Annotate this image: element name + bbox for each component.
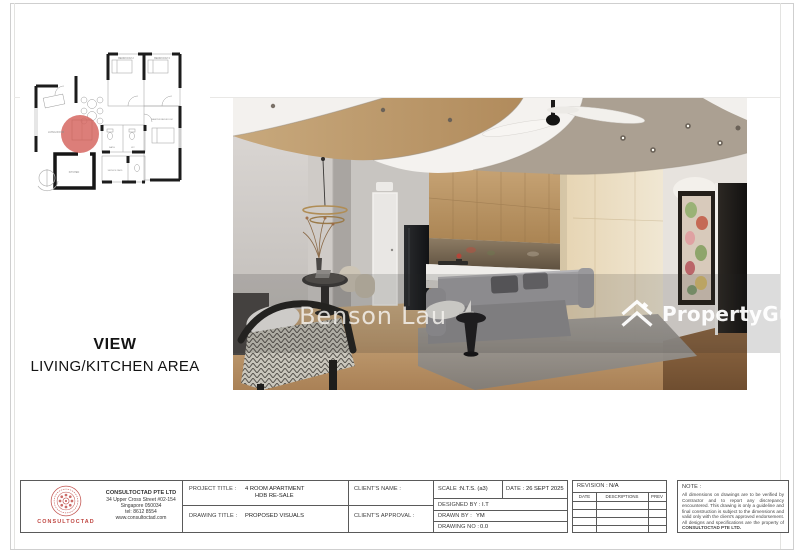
floorplan-thumbnail: BEDROOM 2 BEDROOM 3 MASTER BEDROOM LIVIN…: [20, 8, 210, 200]
label-bedroom2: BEDROOM 2: [118, 56, 134, 60]
drawn-by-label: DRAWN BY :: [438, 513, 472, 519]
watermark-propertyguru: PropertyGuru: [619, 297, 800, 331]
revision-col-prev: PREV: [648, 494, 666, 499]
date-value: 26 SEPT 2025: [526, 486, 564, 492]
revision-col-descriptions: DESCRIPTIONS: [596, 494, 648, 499]
scale-date-row: SCALE : N.T.S. (a3) DATE : 26 SEPT 2025: [434, 481, 567, 499]
label-wc: WC: [131, 147, 135, 149]
revision-box: REVISION : N/A DATE DESCRIPTIONS PREV: [572, 480, 667, 533]
page-border-inner-right: [780, 3, 781, 549]
view-subtitle: LIVING/KITCHEN AREA: [20, 356, 210, 377]
page-border-inner-left: [14, 3, 15, 549]
drawn-by-row: DRAWN BY : YM: [434, 512, 567, 522]
watermark-agent-name: Benson Lau: [233, 302, 513, 330]
drawing-title-label: DRAWING TITLE :: [189, 513, 237, 519]
drawn-by-value: YM: [476, 513, 485, 519]
project-title-row: PROJECT TITLE : 4 ROOM APARTMENT HDB RE-…: [183, 481, 348, 506]
drawing-title-value: PROPOSED VISUALS: [245, 513, 304, 519]
designed-by-row: DESIGNED BY : I.T: [434, 500, 567, 511]
drawing-no-row: DRAWING NO : 0.0: [434, 523, 567, 532]
label-service: SERVICE YARD: [108, 169, 123, 172]
propertyguru-logo-icon: [619, 297, 655, 331]
company-info: CONSULTOCTAD PTE LTD 34 Upper Cross Stre…: [101, 490, 181, 521]
drawing-no-label: DRAWING NO :: [438, 524, 479, 530]
note-body: All dimensions on drawings are to be ver…: [682, 492, 784, 531]
view-caption: VIEW LIVING/KITCHEN AREA: [20, 334, 210, 377]
label-kitchen: KITCHEN: [69, 171, 80, 174]
revision-value: N/A: [609, 483, 619, 489]
scale-label: SCALE :: [438, 486, 460, 492]
project-cell: PROJECT TITLE : 4 ROOM APARTMENT HDB RE-…: [183, 481, 349, 532]
propertyguru-logo-text: PropertyGuru: [662, 302, 800, 326]
client-name-label: CLIENT'S NAME :: [349, 481, 433, 506]
company-name: CONSULTOCTAD PTE LTD: [101, 490, 181, 496]
label-bath: BATH: [109, 146, 115, 149]
client-cell: CLIENT'S NAME : CLIENT'S APPROVAL :: [349, 481, 434, 532]
scale-value: N.T.S. (a3): [460, 486, 488, 492]
drawing-title-row: DRAWING TITLE : PROPOSED VISUALS: [183, 507, 348, 532]
drawing-no-value: 0.0: [480, 524, 488, 530]
door-knob: [391, 249, 393, 251]
counter-pot: [456, 259, 462, 265]
client-approval-label: CLIENT'S APPROVAL :: [354, 513, 414, 519]
label-living: LIVING ROOM: [48, 131, 64, 134]
company-logo: [49, 484, 83, 518]
note-company-bold: CONSULTOCTAD PTE LTD.: [682, 525, 741, 530]
designed-by-value: I.T: [482, 502, 489, 508]
company-cell: CONSULTOCTAD CONSULTOCTAD PTE LTD 34 Upp…: [21, 481, 183, 532]
label-master: MASTER BEDROOM: [151, 118, 172, 121]
company-brand-text: CONSULTOCTAD: [23, 519, 109, 525]
revision-empty-row: [573, 509, 666, 510]
drawing-sheet: { "colors": { "highlight_circle": "#d462…: [0, 0, 800, 553]
aircon-unit: [376, 182, 393, 191]
company-website: www.consultoctad.com: [101, 515, 181, 521]
revision-empty-row: [573, 525, 666, 526]
project-title-value: 4 ROOM APARTMENT HDB RE-SALE: [245, 486, 345, 500]
meta-cell: SCALE : N.T.S. (a3) DATE : 26 SEPT 2025 …: [434, 481, 567, 532]
date-label: DATE :: [506, 486, 524, 492]
revision-empty-row: [573, 517, 666, 518]
designed-by-label: DESIGNED BY :: [438, 502, 481, 508]
note-label: NOTE :: [682, 484, 701, 490]
title-block-main: CONSULTOCTAD CONSULTOCTAD PTE LTD 34 Upp…: [20, 480, 568, 533]
counter-hob: [438, 261, 468, 265]
view-title: VIEW: [20, 334, 210, 356]
label-bedroom3: BEDROOM 3: [154, 56, 170, 60]
revision-label: REVISION :: [577, 483, 608, 489]
floorplan-highlight-circle: [61, 115, 99, 153]
revision-col-date: DATE: [573, 494, 596, 499]
note-box: NOTE : All dimensions on drawings are to…: [677, 480, 789, 533]
project-title-label: PROJECT TITLE :: [189, 486, 236, 492]
counter-flowers: [457, 254, 462, 259]
